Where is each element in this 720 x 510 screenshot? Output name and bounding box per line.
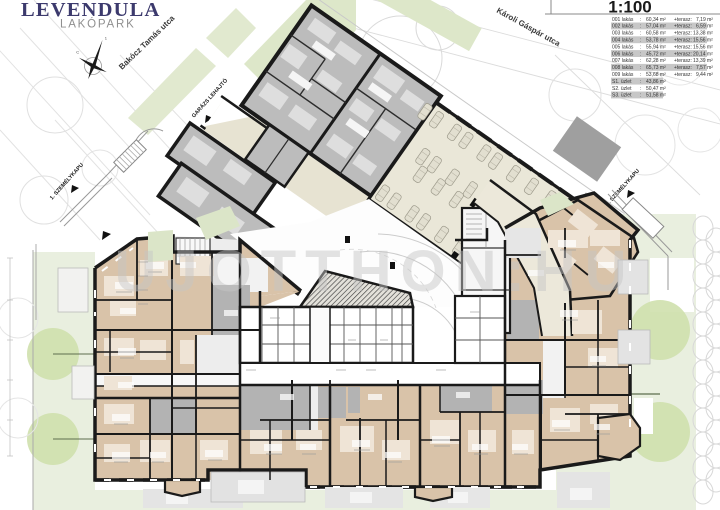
- svg-text::: :: [640, 72, 641, 78]
- svg-text:006 lakás: 006 lakás: [612, 51, 634, 57]
- svg-text:+terasz:: +terasz:: [674, 58, 692, 64]
- svg-text:+terasz:: +terasz:: [674, 65, 692, 71]
- svg-text:009 lakás: 009 lakás: [612, 72, 634, 78]
- svg-text:1:100: 1:100: [608, 0, 651, 17]
- svg-text:C: C: [76, 50, 79, 55]
- svg-text:+terasz:: +terasz:: [674, 72, 692, 78]
- svg-text:57,04 m²: 57,04 m²: [646, 24, 666, 30]
- svg-text::: :: [640, 17, 641, 23]
- svg-text:60,58 m²: 60,58 m²: [646, 31, 666, 37]
- svg-text:002 lakás: 002 lakás: [612, 24, 634, 30]
- svg-text::: :: [640, 51, 641, 57]
- svg-text:S1. üzlet: S1. üzlet: [612, 79, 632, 85]
- svg-text::: :: [640, 86, 641, 92]
- svg-text::: :: [640, 58, 641, 64]
- svg-text:13,38 m²: 13,38 m²: [693, 31, 713, 37]
- svg-text:003 lakás: 003 lakás: [612, 31, 634, 37]
- svg-text::: :: [640, 65, 641, 71]
- svg-text:55,94 m²: 55,94 m²: [646, 44, 666, 50]
- svg-text:15,56 m²: 15,56 m²: [693, 38, 713, 44]
- svg-text:9,44 m²: 9,44 m²: [696, 72, 713, 78]
- svg-text:65,73 m²: 65,73 m²: [646, 65, 666, 71]
- svg-text:+terasz:: +terasz:: [674, 17, 692, 23]
- svg-text::: :: [640, 38, 641, 44]
- svg-text:+terasz:: +terasz:: [674, 38, 692, 44]
- svg-text:43,86 m²: 43,86 m²: [646, 79, 666, 85]
- svg-text:+terasz:: +terasz:: [674, 44, 692, 50]
- svg-text:+terasz:: +terasz:: [674, 24, 692, 30]
- svg-text:+terasz:: +terasz:: [674, 51, 692, 57]
- svg-text:62,28 m²: 62,28 m²: [646, 58, 666, 64]
- svg-text:LAKÓPARK: LAKÓPARK: [60, 18, 136, 31]
- svg-text:13,39 m²: 13,39 m²: [693, 58, 713, 64]
- svg-text::: :: [640, 24, 641, 30]
- svg-text:6,59 m²: 6,59 m²: [696, 24, 713, 30]
- svg-text:20,14 m²: 20,14 m²: [693, 51, 713, 57]
- svg-text:7,57 m²: 7,57 m²: [696, 65, 713, 71]
- svg-text:UJOTTHON:HU: UJOTTHON:HU: [114, 239, 635, 304]
- svg-text:001 lakás: 001 lakás: [612, 17, 634, 23]
- svg-text:45,72 m²: 45,72 m²: [646, 51, 666, 57]
- svg-text::: :: [640, 93, 641, 99]
- svg-text:S3. üzlet: S3. üzlet: [612, 93, 632, 99]
- svg-text:53,68 m²: 53,68 m²: [646, 72, 666, 78]
- svg-text:005 lakás: 005 lakás: [612, 44, 634, 50]
- svg-text:53,78 m²: 53,78 m²: [646, 38, 666, 44]
- svg-text:+terasz:: +terasz:: [674, 31, 692, 37]
- svg-text::: :: [640, 79, 641, 85]
- svg-text:50,47 m²: 50,47 m²: [646, 86, 666, 92]
- svg-text:007 lakás: 007 lakás: [612, 58, 634, 64]
- svg-text:S2. üzlet: S2. üzlet: [612, 86, 632, 92]
- svg-text:60,34 m²: 60,34 m²: [646, 17, 666, 23]
- svg-text:7,19 m²: 7,19 m²: [696, 17, 713, 23]
- svg-text:008 lakás: 008 lakás: [612, 65, 634, 71]
- svg-text:004 lakás: 004 lakás: [612, 38, 634, 44]
- svg-text::: :: [640, 44, 641, 50]
- svg-text:51,58 m²: 51,58 m²: [646, 93, 666, 99]
- svg-text:15,56 m²: 15,56 m²: [693, 44, 713, 50]
- svg-text::: :: [640, 31, 641, 37]
